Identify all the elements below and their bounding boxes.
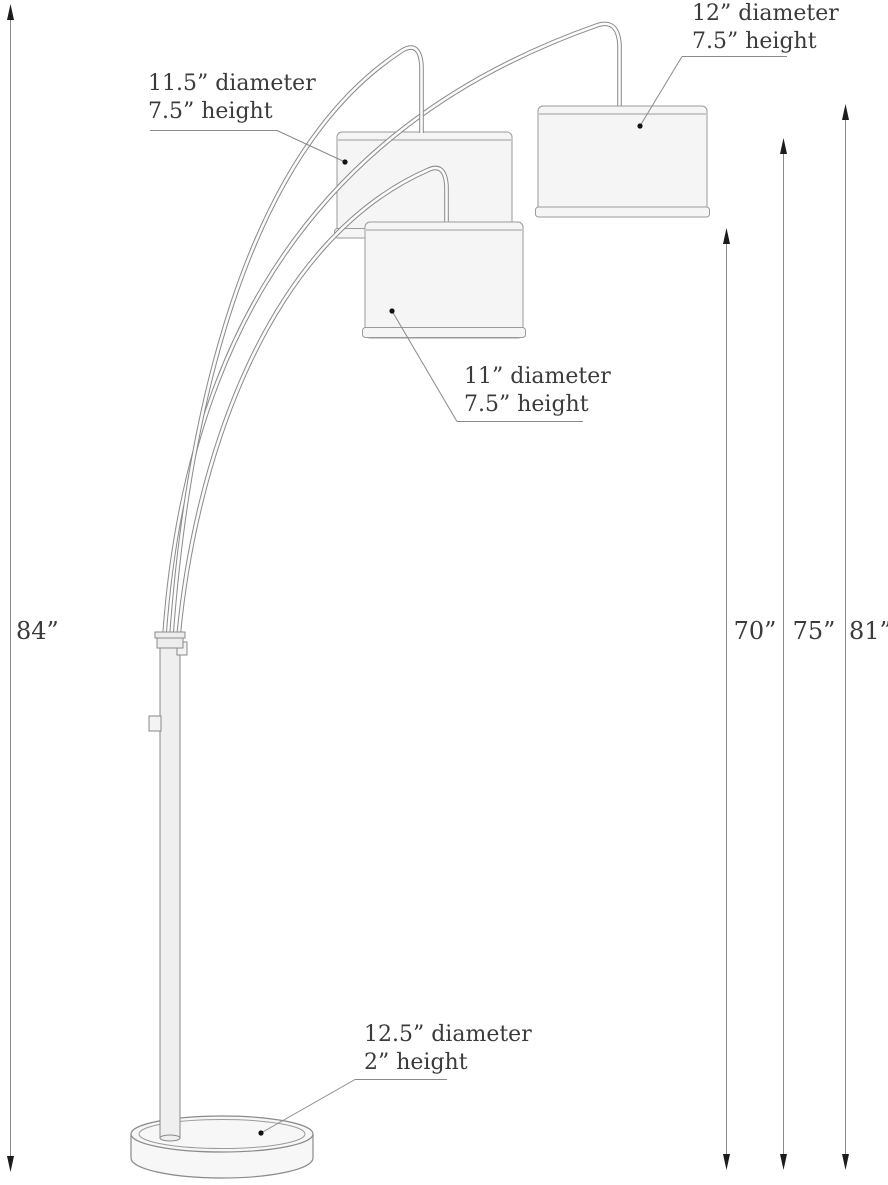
callout-shade-left-line2: 7.5” height	[148, 98, 316, 126]
callout-shade-middle-line1: 11” diameter	[464, 363, 611, 391]
callout-shade-middle: 11” diameter 7.5” height	[464, 363, 611, 419]
arrow-up-icon	[7, 4, 14, 20]
dimension-line-70	[723, 228, 730, 1170]
arrow-up-icon	[842, 104, 849, 120]
dimension-line-75	[780, 138, 787, 1170]
arrow-down-icon	[842, 1154, 849, 1170]
lamp-shade-right	[536, 106, 710, 217]
callout-shade-right: 12” diameter 7.5” height	[692, 0, 839, 56]
arrow-up-icon	[780, 138, 787, 154]
callout-shade-left-line1: 11.5” diameter	[148, 70, 316, 98]
dimension-label-81: 81”	[849, 617, 888, 645]
leader-dot	[389, 308, 394, 313]
callout-base-line2: 2” height	[364, 1049, 532, 1077]
leader-dot	[637, 123, 642, 128]
dimension-line-81	[842, 104, 849, 1170]
callout-shade-right-line1: 12” diameter	[692, 0, 839, 28]
leader-dot	[342, 159, 347, 164]
dimension-line-84	[7, 4, 14, 1172]
lamp-shade-middle	[363, 222, 526, 338]
lamp-pole	[149, 632, 187, 1141]
arrow-down-icon	[723, 1154, 730, 1170]
leader-shade-left	[150, 131, 348, 165]
lamp-base	[131, 1116, 313, 1178]
collar-ring-bottom	[157, 638, 183, 648]
lamp-line-drawing	[0, 0, 888, 1185]
dimension-label-70: 70”	[730, 617, 780, 645]
arrow-down-icon	[780, 1154, 787, 1170]
arrow-down-icon	[7, 1156, 14, 1172]
callout-base: 12.5” diameter 2” height	[364, 1021, 532, 1077]
diagram-canvas: 11.5” diameter 7.5” height 12” diameter …	[0, 0, 888, 1185]
collar-ring-top	[155, 632, 185, 638]
dimension-label-75: 75”	[789, 617, 839, 645]
callout-shade-left: 11.5” diameter 7.5” height	[148, 70, 316, 126]
switch-knob-left	[149, 716, 161, 731]
pole-foot	[160, 1135, 180, 1141]
leader-dot	[258, 1130, 263, 1135]
callout-shade-right-line2: 7.5” height	[692, 28, 839, 56]
arrow-up-icon	[723, 228, 730, 244]
dimension-label-84: 84”	[16, 617, 59, 645]
callout-base-line1: 12.5” diameter	[364, 1021, 532, 1049]
callout-shade-middle-line2: 7.5” height	[464, 391, 611, 419]
